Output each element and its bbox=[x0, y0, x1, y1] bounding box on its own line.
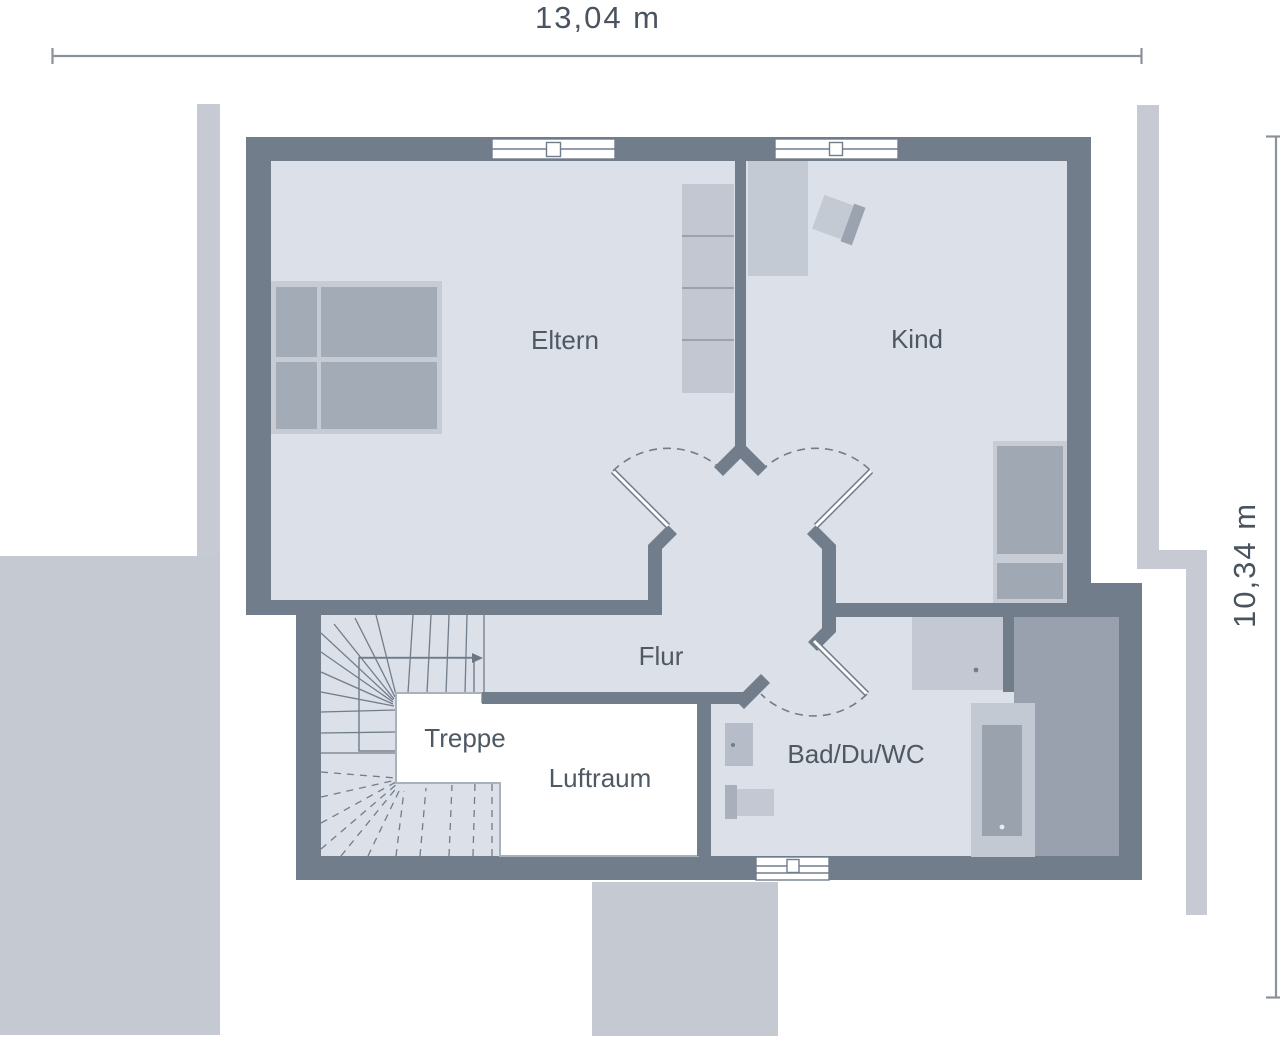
svg-text:10,34 m: 10,34 m bbox=[1227, 502, 1262, 628]
svg-text:Bad/Du/WC: Bad/Du/WC bbox=[787, 739, 924, 769]
svg-text:Treppe: Treppe bbox=[424, 723, 505, 753]
svg-text:Kind: Kind bbox=[891, 324, 943, 354]
svg-text:Eltern: Eltern bbox=[531, 325, 599, 355]
svg-text:Flur: Flur bbox=[639, 641, 684, 671]
svg-text:13,04 m: 13,04 m bbox=[535, 0, 661, 35]
svg-text:Luftraum: Luftraum bbox=[549, 763, 652, 793]
